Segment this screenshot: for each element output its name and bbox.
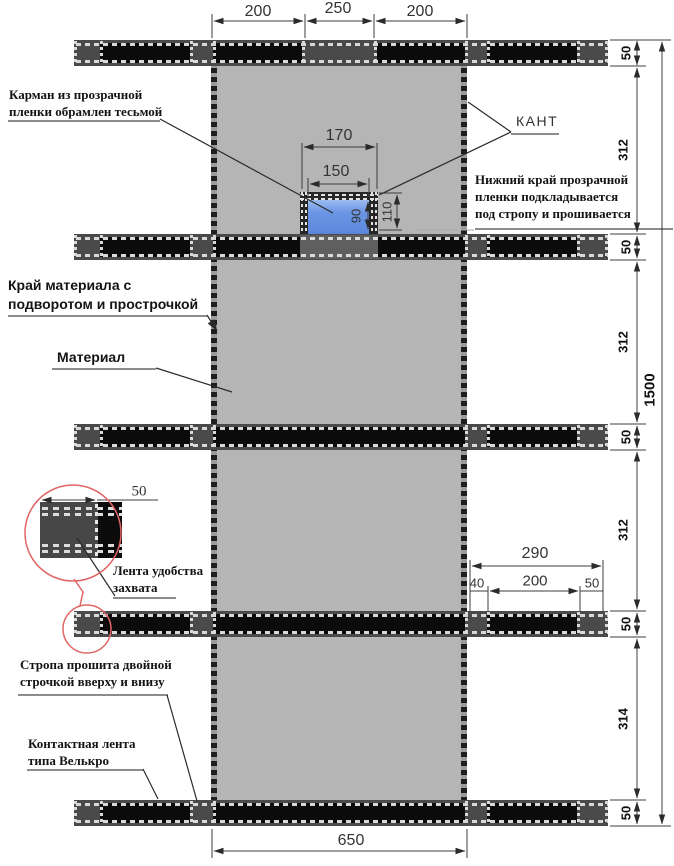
dim-detail-width: 50 [132, 484, 147, 501]
material-edge-line1: Край материала с [8, 276, 198, 295]
strap-stitch-annotation: Стропа прошита двойной строчкой вверху и… [20, 656, 172, 690]
detail-circle-red [25, 485, 121, 653]
dim-bottom-width: 650 [338, 832, 365, 850]
pocket-annotation-line2: пленки обрамлен тесьмой [9, 103, 162, 120]
material-edge-line2: подворотом и прострочкой [8, 295, 198, 314]
dim-right-50a: 50 [619, 46, 634, 60]
dim-right-50d: 50 [619, 617, 634, 631]
material-annotation: Материал [57, 348, 125, 367]
dim-overhang-total: 290 [522, 545, 549, 563]
dim-right-50c: 50 [619, 430, 634, 444]
dim-overhang-50: 50 [585, 576, 599, 591]
dim-pocket-outer-height: 110 [380, 202, 395, 223]
grip-tape-line1: Лента удобства [113, 562, 203, 579]
dim-top-right: 200 [407, 3, 434, 21]
dim-overall-height: 1500 [642, 373, 659, 406]
film-note-line2: пленки подкладывается [475, 188, 631, 205]
film-note-line3: под стропу и прошивается [475, 205, 631, 222]
film-note-line1: Нижний край прозрачной [475, 171, 631, 188]
dim-right-312a: 312 [616, 139, 631, 161]
grip-tape-annotation: Лента удобства захвата [113, 562, 203, 596]
film-note-annotation: Нижний край прозрачной пленки подкладыва… [475, 171, 631, 222]
dim-pocket-outer-width: 170 [326, 127, 353, 145]
grip-tape-line2: захвата [113, 579, 203, 596]
dim-right-50e: 50 [619, 806, 634, 820]
dim-top-mid: 250 [325, 0, 352, 18]
dim-pocket-inner-height: 90 [349, 209, 364, 223]
strap-stitch-line1: Стропа прошита двойной [20, 656, 172, 673]
dim-right-314: 314 [616, 708, 631, 730]
dim-right-312b: 312 [616, 331, 631, 353]
technical-drawing-canvas: 200 250 200 170 150 110 90 50 312 50 312… [0, 0, 674, 866]
velcro-line2: типа Велькро [28, 752, 136, 769]
pocket-annotation: Карман из прозрачной пленки обрамлен тес… [9, 86, 162, 120]
kant-annotation: КАНТ [516, 113, 558, 130]
material-edge-annotation: Край материала с подворотом и прострочко… [8, 276, 198, 314]
dim-pocket-inner-width: 150 [323, 163, 350, 181]
strap-stitch-line2: строчкой вверху и внизу [20, 673, 172, 690]
dim-top-left: 200 [245, 3, 272, 21]
dim-overhang-200: 200 [522, 573, 547, 590]
dim-overhang-40: 40 [470, 576, 484, 591]
velcro-line1: Контактная лента [28, 735, 136, 752]
dim-right-312c: 312 [616, 519, 631, 541]
velcro-annotation: Контактная лента типа Велькро [28, 735, 136, 769]
pocket-annotation-line1: Карман из прозрачной [9, 86, 162, 103]
dim-right-50b: 50 [619, 240, 634, 254]
